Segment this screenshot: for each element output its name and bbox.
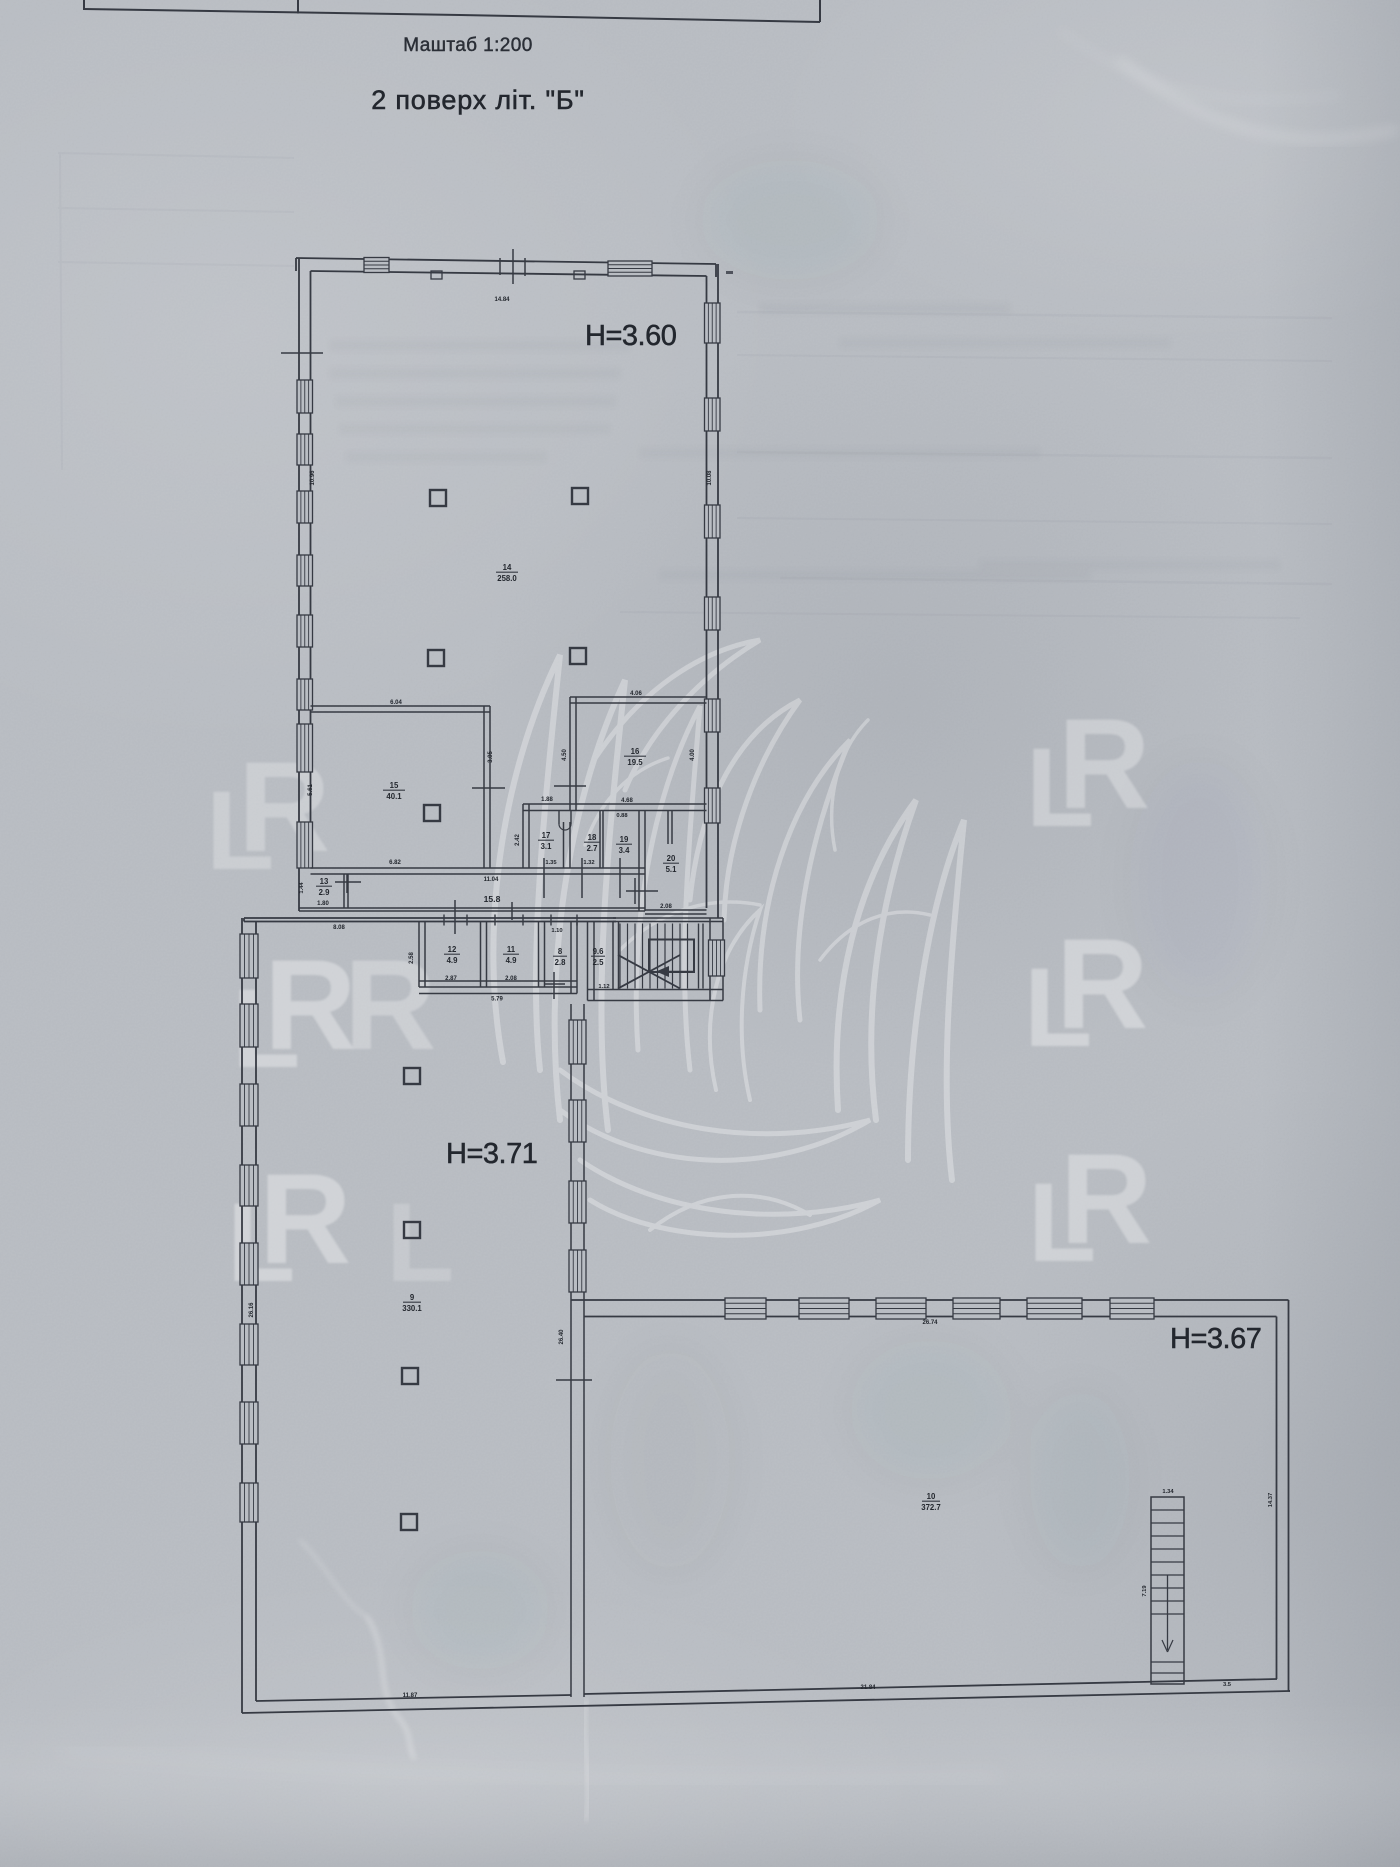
svg-text:14.37: 14.37 — [1268, 1493, 1274, 1508]
svg-text:10.08: 10.08 — [707, 470, 713, 486]
svg-text:H=3.60: H=3.60 — [585, 320, 676, 352]
svg-text:Маштаб 1:200: Маштаб 1:200 — [403, 35, 532, 56]
svg-text:11: 11 — [507, 945, 516, 954]
svg-text:5.61: 5.61 — [308, 784, 314, 796]
svg-text:372.7: 372.7 — [921, 1503, 941, 1512]
svg-text:R: R — [264, 934, 356, 1077]
svg-text:L: L — [386, 1180, 454, 1305]
svg-text:4.50: 4.50 — [562, 749, 568, 761]
svg-text:258.0: 258.0 — [497, 574, 517, 583]
svg-text:1.32: 1.32 — [583, 860, 594, 866]
svg-text:13: 13 — [320, 877, 329, 886]
svg-text:26.74: 26.74 — [922, 1320, 938, 1326]
svg-text:2.5: 2.5 — [593, 958, 605, 967]
svg-text:R: R — [1058, 693, 1150, 836]
svg-text:6.82: 6.82 — [389, 860, 401, 866]
svg-text:2.58: 2.58 — [409, 952, 415, 964]
svg-text:3.1: 3.1 — [541, 842, 553, 851]
svg-text:4.06: 4.06 — [630, 691, 642, 697]
svg-text:7.19: 7.19 — [1142, 1585, 1148, 1597]
svg-text:1.10: 1.10 — [551, 928, 562, 934]
svg-text:19.5: 19.5 — [627, 758, 643, 767]
svg-text:H=3.67: H=3.67 — [1170, 1323, 1261, 1355]
svg-text:1.80: 1.80 — [317, 901, 329, 907]
svg-text:8: 8 — [558, 947, 563, 956]
svg-text:R: R — [259, 1148, 351, 1291]
svg-text:14.84: 14.84 — [494, 297, 510, 303]
svg-text:26.16: 26.16 — [249, 1302, 255, 1318]
svg-text:2.08: 2.08 — [660, 904, 672, 910]
svg-text:11.04: 11.04 — [484, 877, 499, 883]
svg-text:330.1: 330.1 — [402, 1304, 422, 1313]
svg-text:4.9: 4.9 — [506, 956, 518, 965]
svg-text:R: R — [1056, 913, 1148, 1056]
svg-text:40.1: 40.1 — [386, 792, 402, 801]
svg-text:4.00: 4.00 — [690, 749, 696, 761]
svg-text:20: 20 — [667, 854, 676, 863]
svg-text:2 поверх літ. "Б": 2 поверх літ. "Б" — [371, 85, 585, 115]
svg-text:8.08: 8.08 — [333, 925, 345, 931]
svg-text:4.68: 4.68 — [621, 798, 633, 804]
svg-text:17: 17 — [542, 831, 551, 840]
svg-text:6.04: 6.04 — [390, 700, 402, 706]
svg-text:19: 19 — [620, 835, 629, 844]
svg-text:14: 14 — [503, 563, 512, 572]
svg-text:26.40: 26.40 — [559, 1329, 565, 1345]
svg-text:16: 16 — [631, 747, 640, 756]
svg-text:3.4: 3.4 — [619, 846, 631, 855]
svg-text:2.42: 2.42 — [515, 834, 521, 846]
svg-text:5.79: 5.79 — [491, 997, 503, 1003]
svg-text:2.9: 2.9 — [319, 888, 331, 897]
svg-text:9: 9 — [410, 1293, 415, 1302]
svg-text:9.6: 9.6 — [593, 947, 605, 956]
svg-text:H=3.71: H=3.71 — [446, 1138, 537, 1170]
svg-text:3.5: 3.5 — [1223, 1682, 1232, 1688]
svg-text:2.7: 2.7 — [587, 844, 598, 853]
svg-text:15: 15 — [390, 781, 399, 790]
svg-text:R: R — [1060, 1128, 1152, 1271]
svg-text:1.88: 1.88 — [541, 797, 553, 803]
svg-text:1.44: 1.44 — [299, 882, 305, 894]
svg-text:21.84: 21.84 — [860, 1685, 876, 1691]
svg-text:12: 12 — [448, 945, 457, 954]
svg-text:5.1: 5.1 — [666, 865, 678, 874]
svg-text:4.9: 4.9 — [447, 956, 459, 965]
svg-text:10: 10 — [927, 1492, 936, 1501]
svg-text:18: 18 — [588, 833, 597, 842]
svg-text:15.8: 15.8 — [484, 894, 501, 904]
svg-text:1.34: 1.34 — [1162, 1489, 1174, 1495]
svg-text:0.88: 0.88 — [616, 813, 628, 819]
svg-text:R: R — [344, 934, 436, 1077]
svg-text:R: R — [238, 736, 330, 879]
svg-text:3.05: 3.05 — [488, 751, 494, 763]
svg-text:2.8: 2.8 — [555, 958, 567, 967]
svg-text:10.96: 10.96 — [310, 470, 316, 486]
svg-text:1.35: 1.35 — [545, 860, 557, 866]
